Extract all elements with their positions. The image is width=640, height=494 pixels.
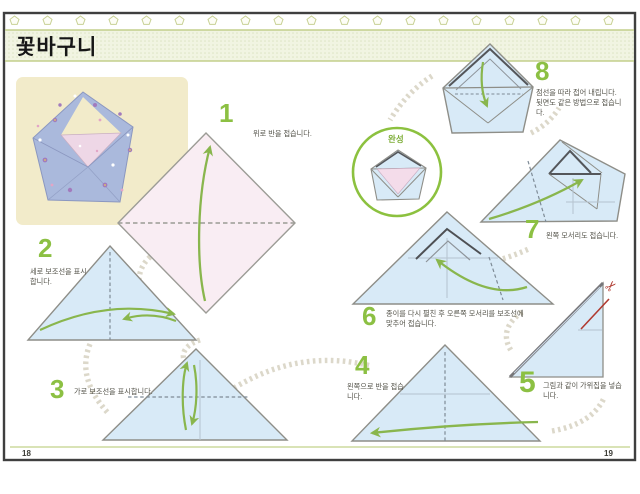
book-spread: 꽃바구니 1 위로 반을 접습니다. 2 세로 보조선을 표시합니다. 3 가로… — [0, 0, 640, 494]
step-6-caption: 종이를 다시 펼친 후 오른쪽 모서리를 보조선에 맞추어 접습니다. — [386, 309, 528, 329]
step-3-caption: 가로 보조선을 표시합니다. — [74, 387, 186, 397]
completion-label: 완성 — [388, 133, 404, 145]
step-7-number: 7 — [525, 216, 539, 242]
step-1-number: 1 — [219, 100, 233, 126]
step-5-number: 5 — [519, 368, 536, 398]
step-8-number: 8 — [535, 58, 549, 84]
step-5-caption: 그림과 같이 가위집을 넣습니다. — [543, 381, 623, 401]
step-4-number: 4 — [355, 352, 369, 378]
step-7-caption: 왼쪽 모서리도 접습니다. — [546, 231, 640, 241]
step-8-caption: 점선을 따라 접어 내립니다. 뒷면도 같은 방법으로 접습니다. — [536, 88, 624, 118]
page-number-right: 19 — [604, 449, 613, 458]
step-6-number: 6 — [362, 303, 376, 329]
step-1-caption: 위로 반을 접습니다. — [253, 129, 348, 139]
page-title: 꽃바구니 — [16, 31, 97, 61]
step-4-caption: 왼쪽으로 반을 접습니다. — [347, 382, 405, 402]
page-number-left: 18 — [22, 449, 31, 458]
step-3-number: 3 — [50, 376, 64, 402]
step-2-number: 2 — [38, 235, 52, 261]
step-2-caption: 세로 보조선을 표시합니다. — [30, 267, 92, 287]
